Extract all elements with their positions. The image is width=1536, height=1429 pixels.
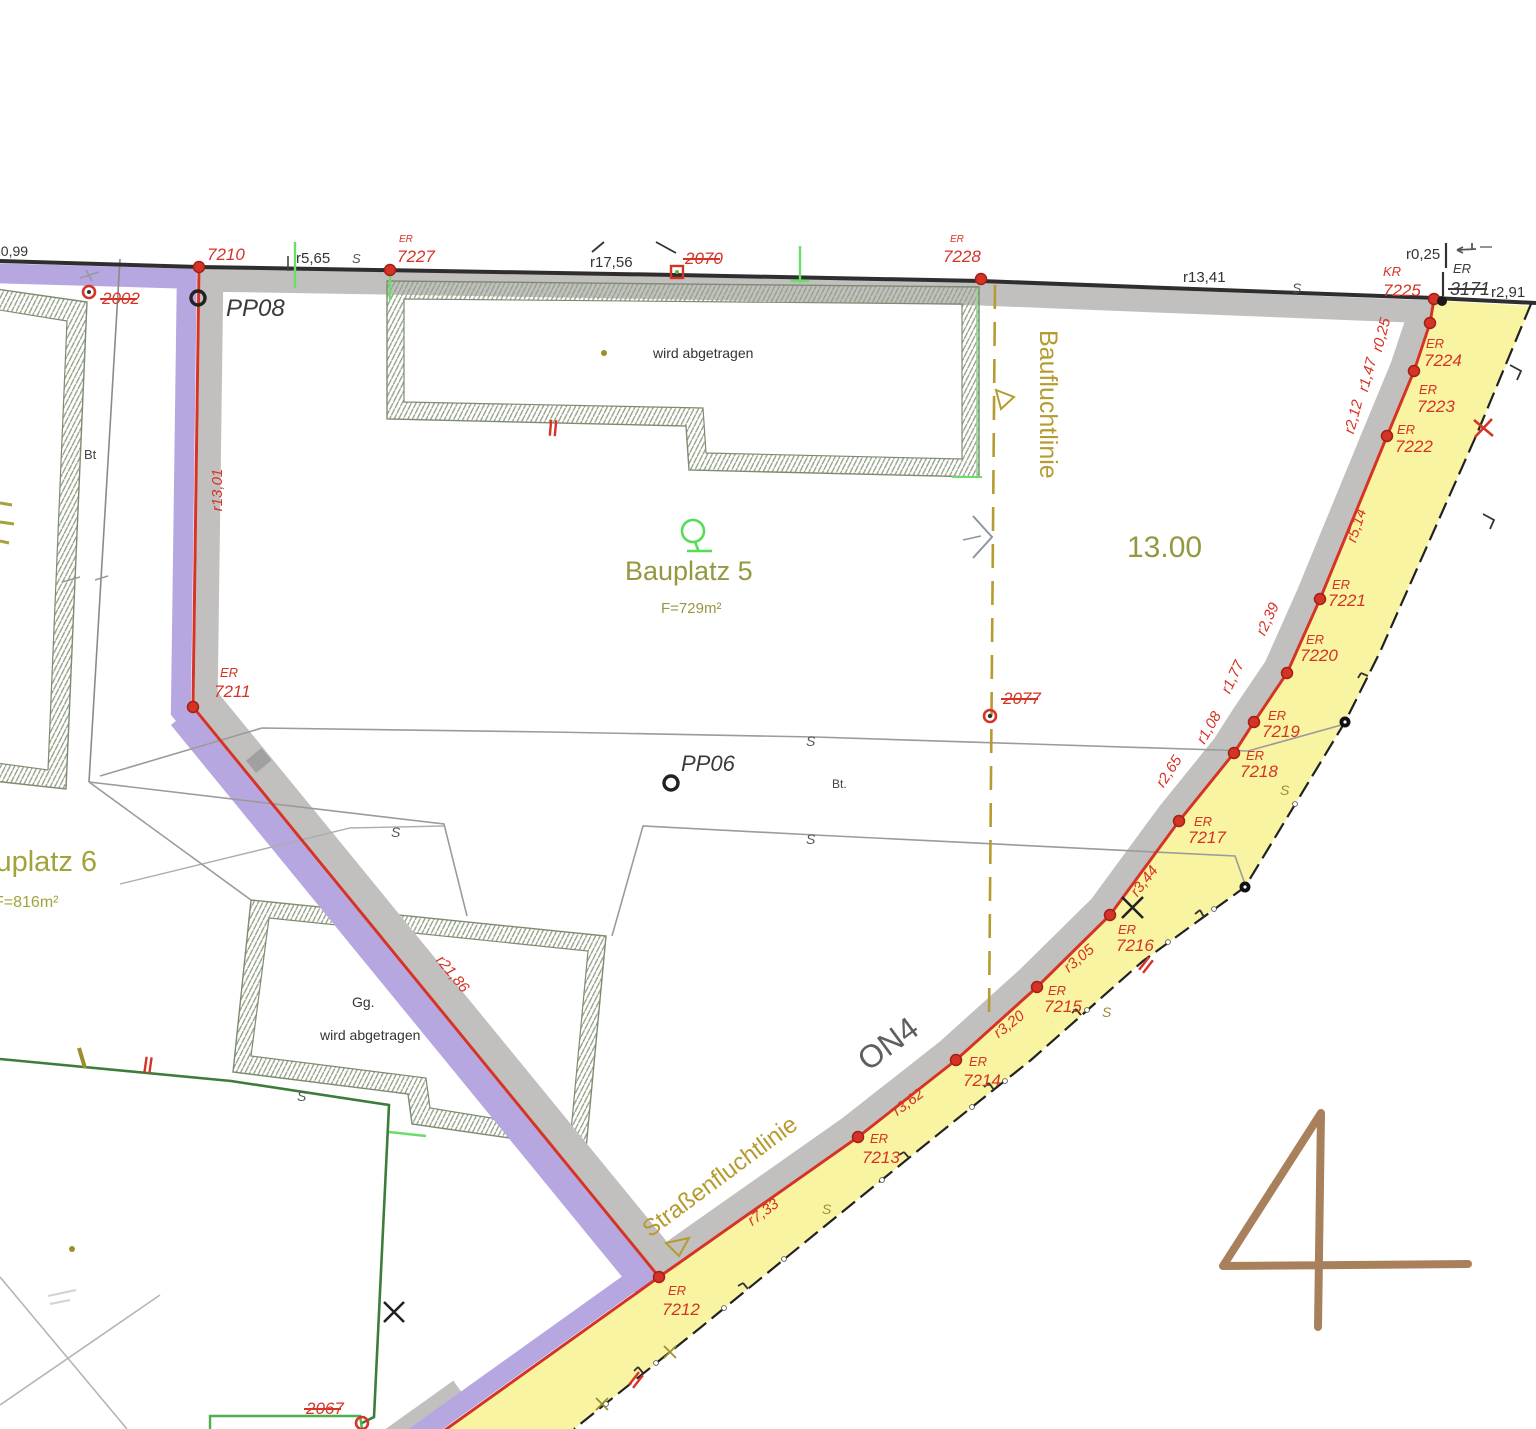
svg-text:ER: ER — [1268, 708, 1286, 723]
svg-text:S: S — [297, 1088, 307, 1104]
svg-text:7222: 7222 — [1395, 437, 1433, 456]
svg-text:ER: ER — [1453, 261, 1471, 276]
svg-text:7212: 7212 — [662, 1300, 700, 1319]
svg-text:Bauplatz 6: Bauplatz 6 — [0, 846, 97, 878]
svg-text:ER: ER — [1306, 632, 1324, 647]
svg-text:ER: ER — [1118, 922, 1136, 937]
svg-text:ER: ER — [1332, 577, 1350, 592]
svg-text:ER: ER — [950, 234, 964, 245]
svg-text:7217: 7217 — [1188, 828, 1226, 847]
svg-text:Bt.: Bt. — [832, 777, 847, 791]
svg-text:r2,91: r2,91 — [1491, 284, 1525, 301]
svg-text:r0,25: r0,25 — [1406, 246, 1440, 263]
svg-text:S: S — [806, 733, 816, 749]
svg-text:ER: ER — [1426, 336, 1444, 351]
svg-text:wird abgetragen: wird abgetragen — [319, 1027, 420, 1043]
svg-text:ER: ER — [220, 665, 238, 680]
svg-text:r17,56: r17,56 — [590, 254, 633, 271]
svg-text:ER: ER — [399, 234, 413, 245]
svg-text:PP08: PP08 — [226, 295, 285, 322]
svg-text:ER: ER — [969, 1054, 987, 1069]
svg-text:7214: 7214 — [963, 1071, 1001, 1090]
svg-text:PP06: PP06 — [681, 751, 736, 776]
svg-text:Bauplatz 5: Bauplatz 5 — [625, 556, 753, 586]
svg-text:F=816m²: F=816m² — [0, 894, 59, 911]
svg-text:wird abgetragen: wird abgetragen — [652, 345, 753, 361]
svg-text:r13,01: r13,01 — [209, 469, 226, 512]
svg-text:7225: 7225 — [1383, 281, 1421, 300]
svg-text:S: S — [806, 831, 816, 847]
svg-text:7220: 7220 — [1300, 646, 1338, 665]
svg-text:ER: ER — [870, 1131, 888, 1146]
svg-text:Bt: Bt — [84, 447, 97, 462]
svg-text:ER: ER — [1419, 382, 1437, 397]
svg-text:ER: ER — [1194, 814, 1212, 829]
svg-text:ER: ER — [1246, 748, 1264, 763]
svg-text:ER: ER — [1048, 983, 1066, 998]
svg-text:r5,65: r5,65 — [296, 250, 330, 267]
svg-text:7213: 7213 — [862, 1148, 900, 1167]
svg-text:S: S — [391, 824, 401, 840]
svg-text:r13,41: r13,41 — [1183, 269, 1226, 286]
svg-text:ER: ER — [668, 1283, 686, 1298]
svg-text:S: S — [822, 1201, 832, 1217]
svg-text:7219: 7219 — [1262, 722, 1300, 741]
svg-text:7221: 7221 — [1328, 591, 1366, 610]
svg-text:ER: ER — [1397, 422, 1415, 437]
svg-text:Gg.: Gg. — [352, 994, 375, 1010]
svg-text:S: S — [352, 251, 361, 266]
svg-text:S: S — [1102, 1004, 1112, 1020]
svg-text:7216: 7216 — [1116, 936, 1154, 955]
svg-text:7210: 7210 — [207, 245, 245, 264]
svg-text:F=729m²: F=729m² — [661, 600, 721, 617]
svg-text:7211: 7211 — [214, 682, 251, 701]
svg-text:10,99: 10,99 — [0, 243, 28, 259]
svg-text:7228: 7228 — [943, 247, 981, 266]
svg-text:7227: 7227 — [397, 247, 435, 266]
svg-text:7223: 7223 — [1417, 397, 1455, 416]
svg-text:7224: 7224 — [1424, 351, 1462, 370]
svg-text:7215: 7215 — [1044, 997, 1082, 1016]
svg-text:KR: KR — [1383, 264, 1401, 279]
svg-text:Baufluchtlinie: Baufluchtlinie — [1034, 330, 1062, 479]
svg-text:13.00: 13.00 — [1127, 531, 1202, 564]
svg-text:S: S — [1280, 782, 1290, 798]
svg-text:7218: 7218 — [1240, 762, 1278, 781]
svg-text:S: S — [1292, 280, 1302, 296]
